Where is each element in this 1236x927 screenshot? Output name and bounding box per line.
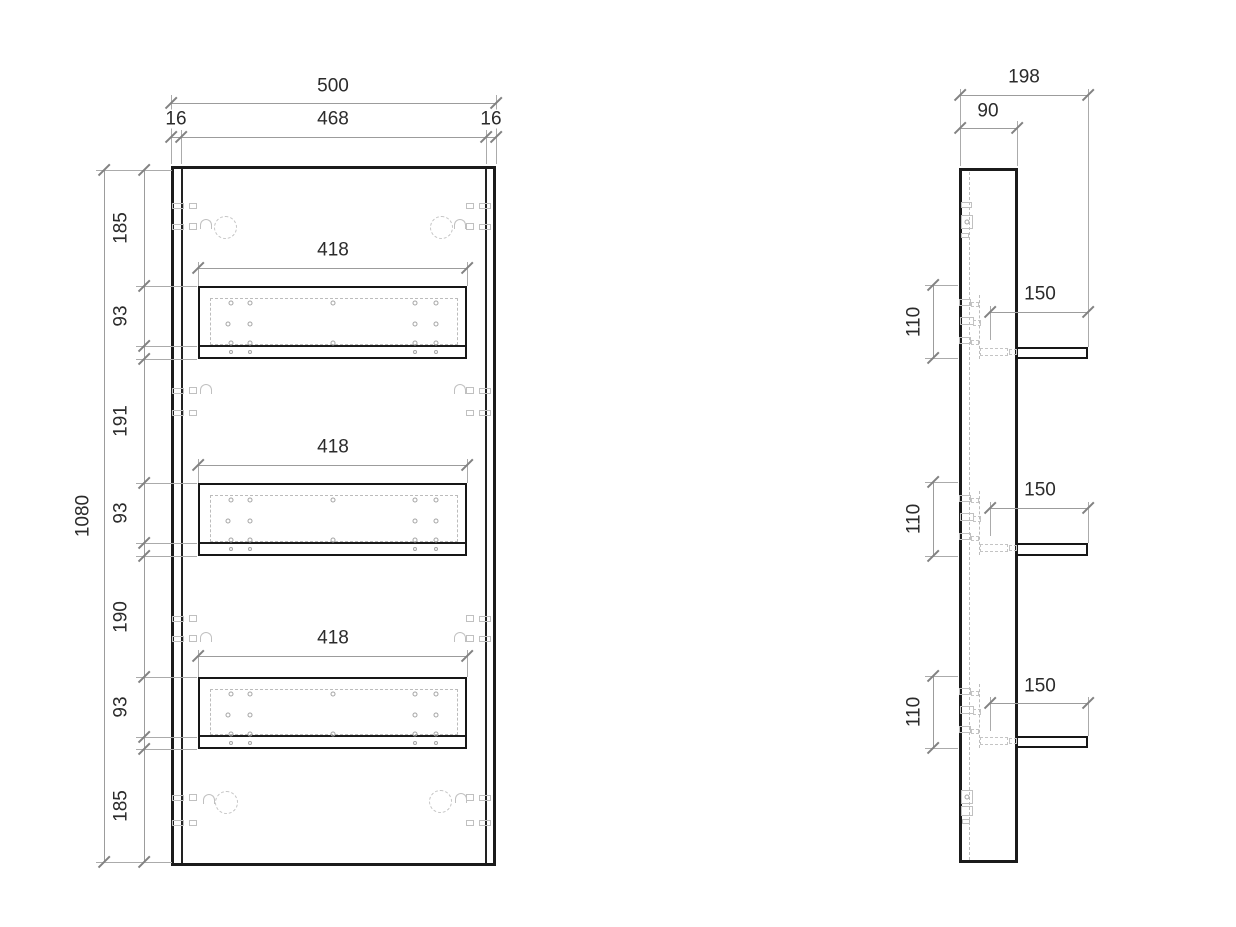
fitting-hidden bbox=[980, 348, 1008, 356]
fitting-hidden bbox=[1009, 349, 1017, 355]
side-shelf-1 bbox=[1016, 347, 1088, 359]
extension-line bbox=[96, 862, 172, 863]
drill-hole bbox=[248, 519, 253, 524]
dim-width-inner: 468 bbox=[315, 110, 351, 129]
fitting bbox=[479, 410, 491, 416]
extension-line bbox=[136, 543, 197, 544]
dim-shelf-depth-1: 150 bbox=[1022, 285, 1058, 304]
dimension-line bbox=[144, 170, 145, 862]
dim-panel-width: 90 bbox=[975, 102, 1000, 121]
fitting bbox=[189, 387, 197, 394]
fitting bbox=[959, 533, 971, 540]
dim-chain-6: 93 bbox=[112, 694, 131, 719]
drill-hole bbox=[229, 301, 234, 306]
dimension-line bbox=[933, 285, 934, 358]
extension-line bbox=[136, 556, 197, 557]
hanger-hole bbox=[215, 791, 238, 814]
front-left-edge-line bbox=[181, 169, 183, 863]
drill-hole bbox=[413, 732, 418, 737]
drill-hole bbox=[434, 519, 439, 524]
fitting-hidden bbox=[971, 691, 979, 696]
drill-hole bbox=[229, 538, 234, 543]
bracket-arc bbox=[454, 632, 466, 642]
extension-line bbox=[136, 346, 197, 347]
dim-chain-7: 185 bbox=[112, 788, 131, 824]
drill-hole bbox=[434, 547, 438, 551]
drill-hole bbox=[413, 322, 418, 327]
fitting bbox=[959, 726, 971, 733]
fitting bbox=[959, 495, 971, 502]
dim-chain-4: 93 bbox=[112, 500, 131, 525]
fitting bbox=[479, 224, 491, 230]
drill-hole bbox=[248, 547, 252, 551]
fitting bbox=[189, 794, 197, 801]
fitting bbox=[960, 317, 974, 325]
fitting bbox=[961, 202, 972, 208]
drill-hole bbox=[229, 692, 234, 697]
fitting-hidden bbox=[1009, 545, 1017, 551]
fitting bbox=[172, 224, 184, 230]
fitting-hidden bbox=[980, 544, 1008, 552]
drill-hole bbox=[434, 713, 439, 718]
fitting-hidden bbox=[971, 536, 979, 541]
fitting bbox=[959, 688, 971, 695]
drill-hole bbox=[226, 713, 231, 718]
extension-line bbox=[96, 170, 172, 171]
extension-line bbox=[136, 286, 197, 287]
drill-hole bbox=[226, 519, 231, 524]
extension-line bbox=[136, 483, 197, 484]
fitting bbox=[961, 806, 973, 816]
front-right-edge-line bbox=[485, 169, 487, 863]
fitting bbox=[959, 299, 971, 306]
dim-depth-total: 198 bbox=[1006, 68, 1042, 87]
drill-hole bbox=[248, 322, 253, 327]
dimension-line bbox=[990, 703, 1088, 704]
fitting bbox=[466, 615, 474, 622]
fitting-hidden bbox=[971, 498, 979, 503]
dim-height-total: 1080 bbox=[74, 493, 93, 539]
dimension-line bbox=[933, 482, 934, 556]
drill-hole bbox=[434, 322, 439, 327]
drill-hole bbox=[413, 547, 417, 551]
drill-hole bbox=[248, 498, 253, 503]
dimension-line bbox=[990, 508, 1088, 509]
fitting-hidden bbox=[973, 320, 981, 326]
drill-hole bbox=[434, 741, 438, 745]
drill-hole bbox=[331, 732, 336, 737]
dimension-line bbox=[198, 268, 467, 269]
drill-hole bbox=[331, 498, 336, 503]
dim-chain-5: 190 bbox=[112, 599, 131, 635]
fitting bbox=[960, 513, 974, 521]
fitting bbox=[479, 616, 491, 622]
fitting bbox=[172, 636, 184, 642]
fitting bbox=[172, 203, 184, 209]
dim-shelf-height-2: 110 bbox=[905, 502, 924, 536]
drill-hole bbox=[413, 498, 418, 503]
drill-hole bbox=[434, 498, 439, 503]
dimension-line bbox=[198, 656, 467, 657]
drill-hole bbox=[413, 301, 418, 306]
dimension-line bbox=[104, 170, 105, 862]
dimension-line bbox=[933, 676, 934, 748]
side-shelf-2 bbox=[1016, 543, 1088, 556]
fitting bbox=[172, 410, 184, 416]
extension-line bbox=[136, 737, 197, 738]
drill-hole bbox=[331, 301, 336, 306]
drill-hole bbox=[229, 741, 233, 745]
drill-hole bbox=[248, 713, 253, 718]
fitting-hole bbox=[965, 795, 970, 800]
dim-shelf-height-3: 110 bbox=[905, 695, 924, 729]
drill-hole bbox=[248, 301, 253, 306]
fitting bbox=[466, 794, 474, 801]
fitting bbox=[172, 388, 184, 394]
fitting bbox=[189, 820, 197, 826]
bracket-arc bbox=[200, 219, 212, 229]
drill-hole bbox=[434, 350, 438, 354]
fitting-hidden bbox=[973, 709, 981, 715]
fitting bbox=[189, 410, 197, 416]
fitting bbox=[479, 203, 491, 209]
drill-hole bbox=[413, 350, 417, 354]
drill-hole bbox=[434, 732, 439, 737]
extension-line bbox=[136, 677, 197, 678]
drill-hole bbox=[331, 538, 336, 543]
drill-hole bbox=[331, 692, 336, 697]
extension-line bbox=[496, 95, 497, 164]
drill-hole bbox=[248, 341, 253, 346]
fitting bbox=[172, 616, 184, 622]
drill-hole bbox=[248, 732, 253, 737]
fitting bbox=[479, 795, 491, 801]
hanger-hole bbox=[430, 216, 453, 239]
dim-shelf-depth-2: 150 bbox=[1022, 481, 1058, 500]
drill-hole bbox=[434, 538, 439, 543]
drill-hole bbox=[229, 350, 233, 354]
drill-hole bbox=[229, 547, 233, 551]
dimension-line bbox=[171, 103, 496, 104]
fitting-hole bbox=[965, 220, 970, 225]
dim-chain-3: 191 bbox=[112, 403, 131, 439]
fitting bbox=[479, 388, 491, 394]
drill-hole bbox=[248, 692, 253, 697]
fitting bbox=[959, 337, 971, 344]
drill-hole bbox=[248, 538, 253, 543]
drill-hole bbox=[413, 741, 417, 745]
fitting bbox=[466, 203, 474, 209]
drill-hole bbox=[226, 322, 231, 327]
side-shelf-3 bbox=[1016, 736, 1088, 748]
drill-hole bbox=[413, 519, 418, 524]
fitting bbox=[961, 233, 969, 238]
dim-chain-2: 93 bbox=[112, 303, 131, 328]
fitting bbox=[466, 635, 474, 642]
dim-shelf-width-1: 418 bbox=[315, 241, 351, 260]
fitting bbox=[189, 203, 197, 209]
fitting bbox=[466, 820, 474, 826]
dim-edge-right: 16 bbox=[478, 110, 503, 129]
fitting bbox=[466, 387, 474, 394]
fitting-hidden bbox=[1009, 738, 1017, 744]
drill-hole bbox=[229, 732, 234, 737]
drill-hole bbox=[413, 538, 418, 543]
fitting bbox=[189, 615, 197, 622]
hanger-hole bbox=[214, 216, 237, 239]
drill-hole bbox=[229, 498, 234, 503]
dim-width-total: 500 bbox=[315, 77, 351, 96]
dim-shelf-width-2: 418 bbox=[315, 438, 351, 457]
fitting-hidden bbox=[971, 729, 979, 734]
extension-line bbox=[171, 95, 172, 164]
hanger-hole bbox=[429, 790, 452, 813]
fitting-hidden bbox=[973, 516, 981, 522]
fitting-hidden bbox=[980, 737, 1008, 745]
fitting bbox=[479, 820, 491, 826]
dim-edge-left: 16 bbox=[163, 110, 188, 129]
drill-hole bbox=[413, 713, 418, 718]
dimension-line bbox=[171, 137, 496, 138]
bracket-arc bbox=[454, 384, 466, 394]
dimension-line bbox=[990, 312, 1088, 313]
drill-hole bbox=[413, 692, 418, 697]
fitting-hidden bbox=[971, 340, 979, 345]
dim-shelf-depth-3: 150 bbox=[1022, 677, 1058, 696]
extension-line bbox=[136, 749, 197, 750]
fitting bbox=[466, 410, 474, 416]
fitting bbox=[960, 706, 974, 714]
drill-hole bbox=[434, 301, 439, 306]
fitting bbox=[172, 795, 184, 801]
dim-shelf-width-3: 418 bbox=[315, 629, 351, 648]
extension-line bbox=[136, 359, 197, 360]
bracket-arc bbox=[455, 793, 467, 803]
technical-drawing: 418 418 418 500 16 468 16 185 bbox=[0, 0, 1236, 927]
drill-hole bbox=[248, 350, 252, 354]
dim-shelf-height-1: 110 bbox=[905, 305, 924, 339]
dim-chain-1: 185 bbox=[112, 210, 131, 246]
fitting bbox=[962, 819, 970, 824]
front-shelf-3 bbox=[198, 677, 467, 749]
bracket-arc bbox=[200, 384, 212, 394]
drill-hole bbox=[413, 341, 418, 346]
dimension-line bbox=[198, 465, 467, 466]
dimension-line bbox=[960, 95, 1088, 96]
front-shelf-1 bbox=[198, 286, 467, 359]
front-shelf-2 bbox=[198, 483, 467, 556]
bracket-arc bbox=[203, 794, 215, 804]
fitting bbox=[189, 223, 197, 230]
fitting bbox=[189, 635, 197, 642]
drill-hole bbox=[434, 341, 439, 346]
fitting bbox=[172, 820, 184, 826]
fitting bbox=[466, 223, 474, 230]
fitting-hidden bbox=[971, 302, 979, 307]
drill-hole bbox=[229, 341, 234, 346]
dimension-line bbox=[960, 128, 1017, 129]
bracket-arc bbox=[200, 632, 212, 642]
drill-hole bbox=[331, 341, 336, 346]
drill-hole bbox=[434, 692, 439, 697]
bracket-arc bbox=[454, 219, 466, 229]
drill-hole bbox=[248, 741, 252, 745]
fitting bbox=[479, 636, 491, 642]
